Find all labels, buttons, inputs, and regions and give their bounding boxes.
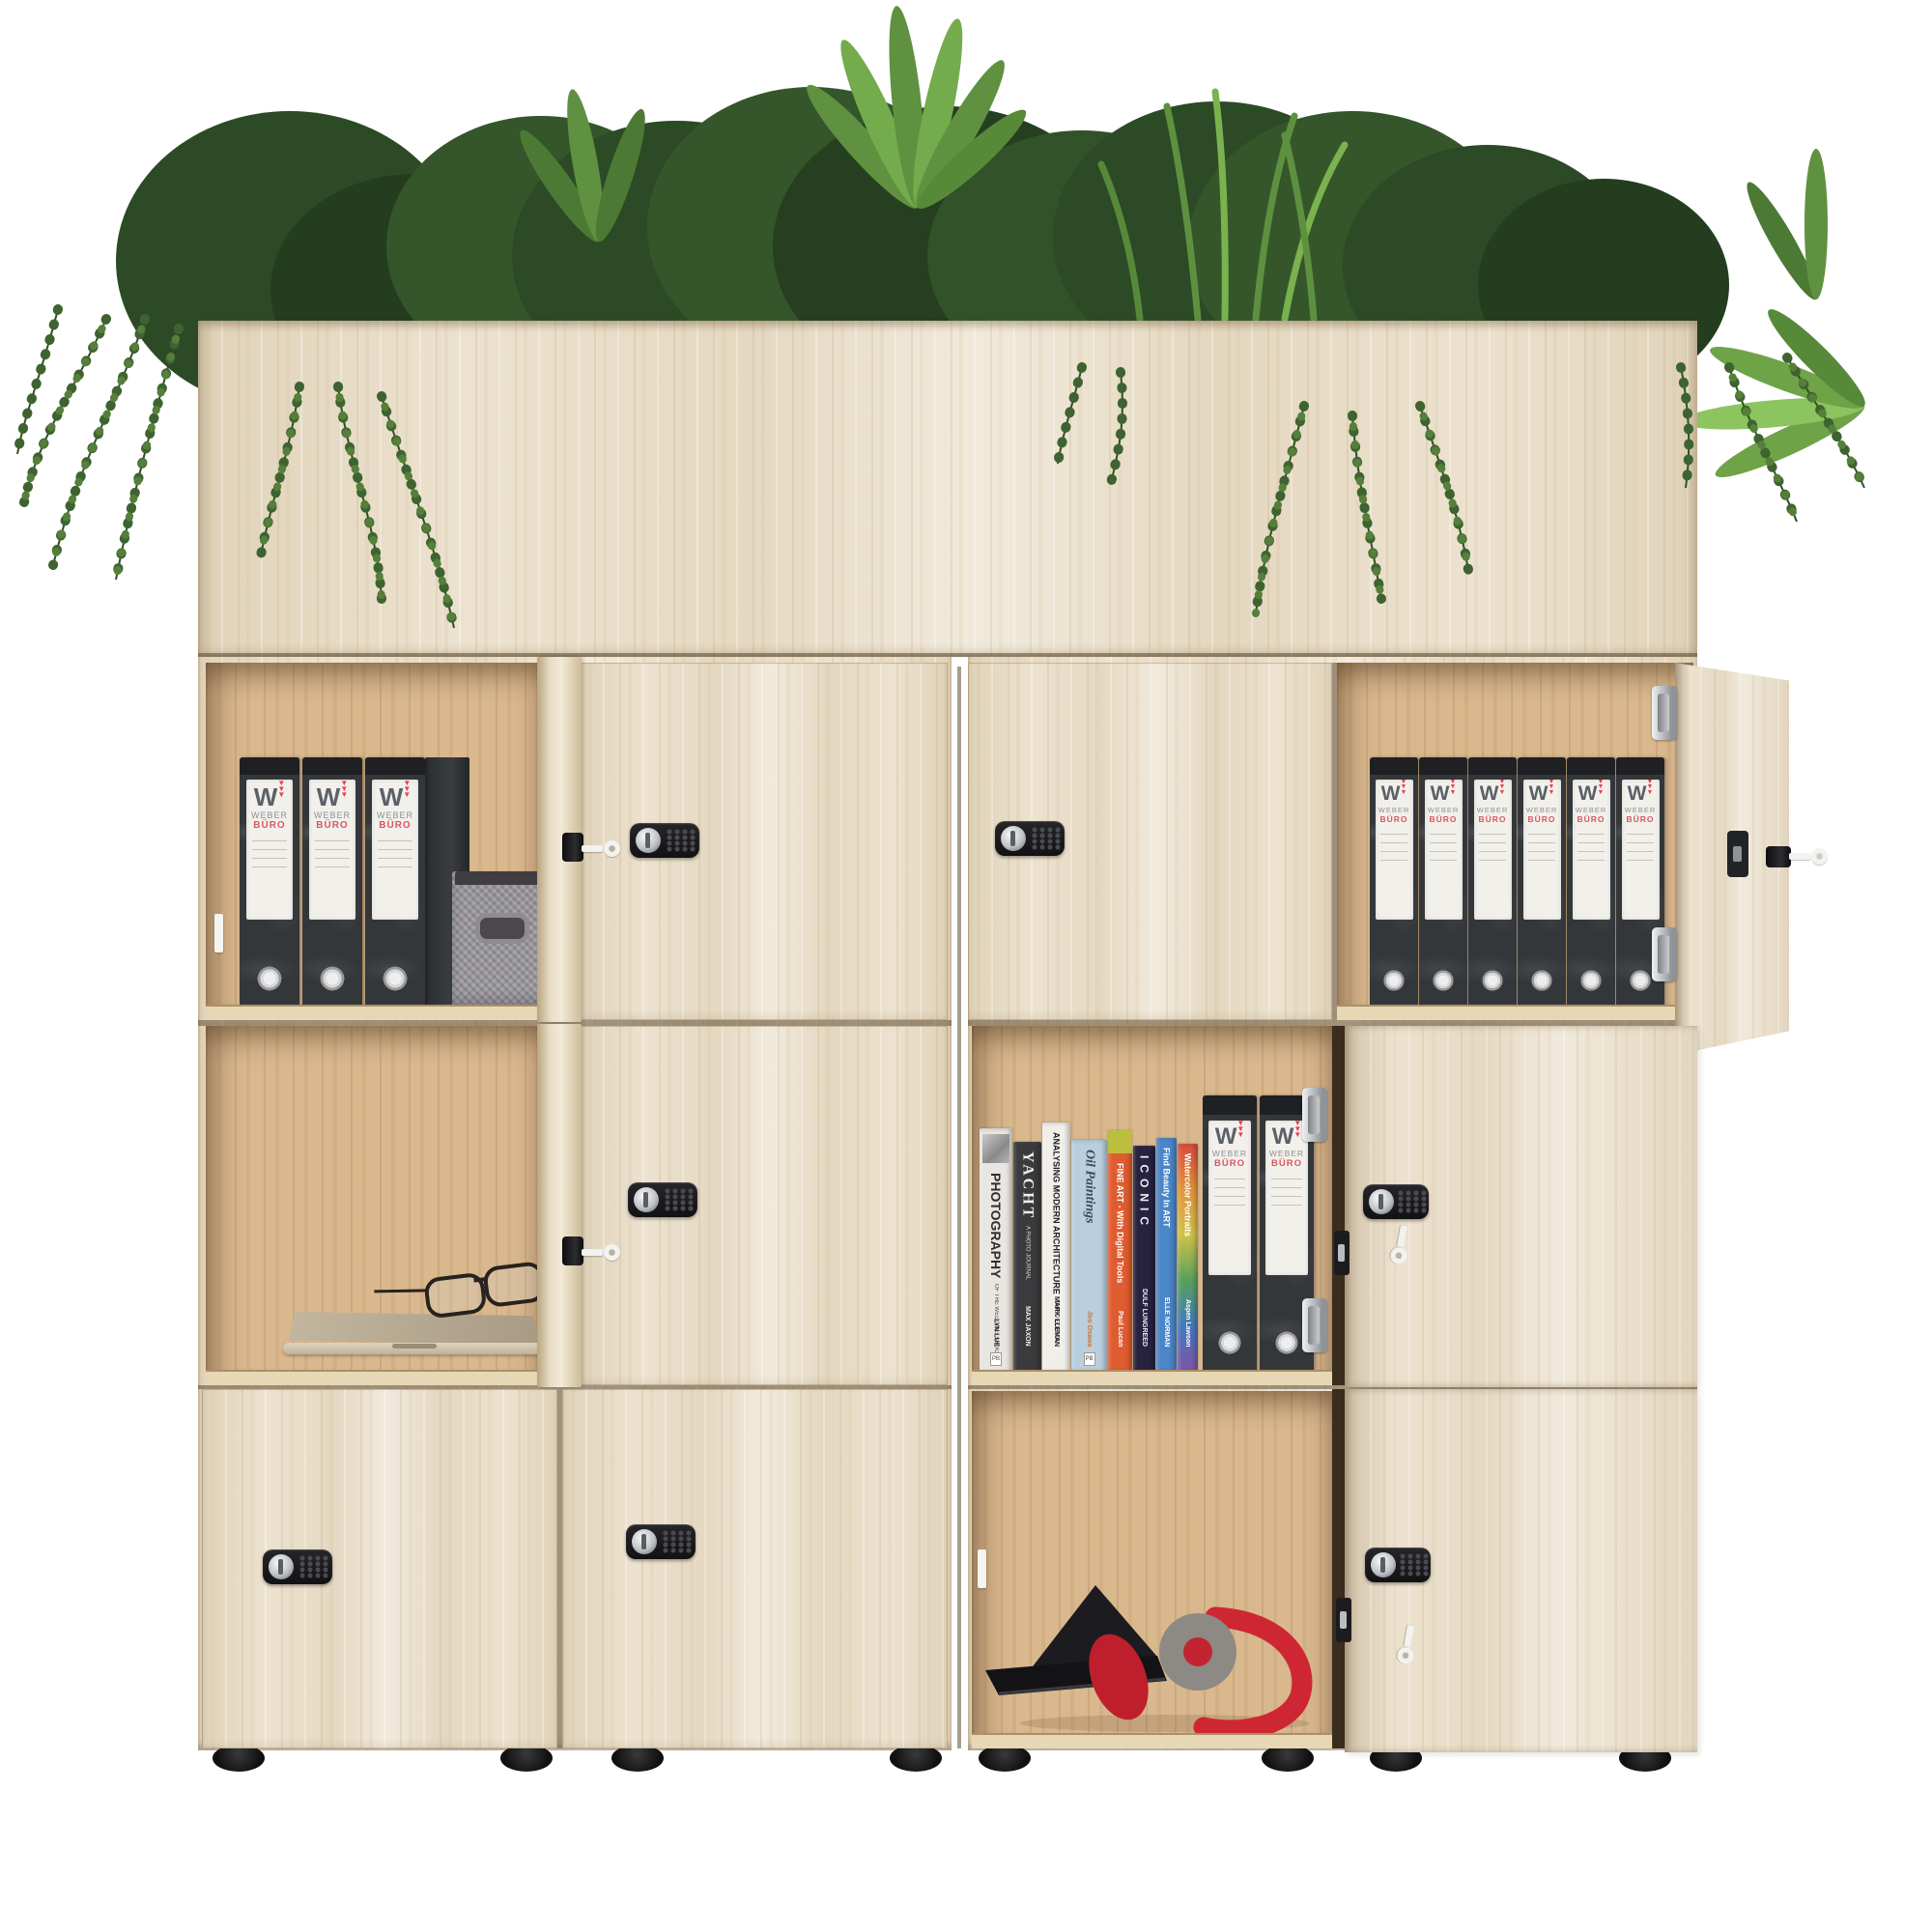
book-spine: PHOTOGRAPHYOF THE WEDDING SHOOTLYN LUEPB <box>980 1128 1012 1372</box>
binder-logo-triangles: ▼▼▼ <box>403 781 411 799</box>
planter-box <box>198 321 1697 657</box>
binder-label: W▼▼▼WEBERBÜRO <box>372 780 418 919</box>
tablet-and-headphones <box>972 1571 1332 1748</box>
binder: W▼▼▼WEBERBÜRO <box>302 757 362 1007</box>
binder-logo-letter: W <box>1578 785 1598 804</box>
binder-logo: W▼▼▼ <box>1272 1126 1302 1148</box>
binder-label: W▼▼▼WEBERBÜRO <box>1622 780 1660 919</box>
book-spine: FINE ART - With Digital ToolsPaul Lucan <box>1108 1130 1132 1372</box>
binder-logo: W▼▼▼ <box>1529 785 1555 804</box>
compartment-open-top-left: W▼▼▼WEBERBÜROW▼▼▼WEBERBÜROW▼▼▼WEBERBÜRO <box>206 663 541 1020</box>
shelf-edge <box>1337 1005 1693 1020</box>
door-seam <box>557 1389 562 1748</box>
white-key <box>582 1244 620 1261</box>
binder-logo-triangles: ▼▼▼ <box>1646 780 1653 795</box>
book-title: ICONIC <box>1138 1155 1151 1231</box>
book-title: Oil Paintings <box>1082 1150 1097 1224</box>
gray-fabric-storage-cube <box>452 871 541 1007</box>
binder-logo-triangles: ▼▼▼ <box>1548 780 1554 795</box>
binder-logo-triangles: ▼▼▼ <box>1293 1121 1301 1139</box>
book-author: MARK LLEMAN <box>1053 1296 1060 1347</box>
cabinet-foot <box>213 1745 265 1772</box>
binder-logo-letter: W <box>1215 1126 1237 1148</box>
binder-brand-bottom: BÜRO <box>253 820 285 831</box>
book-author: LYN LUE <box>993 1319 1000 1347</box>
binder-brand-top: WEBER <box>377 810 413 820</box>
binder-logo: W▼▼▼ <box>1628 785 1654 804</box>
door-seam <box>1332 663 1337 1020</box>
binder-brand-bottom: BÜRO <box>379 820 411 831</box>
binder-logo: W▼▼▼ <box>1431 785 1457 804</box>
combination-lock-door-back <box>1363 1184 1429 1219</box>
book-title: YACHT <box>1019 1151 1037 1220</box>
glasses-arm <box>374 1289 428 1293</box>
binder-logo-triangles: ▼▼▼ <box>277 781 285 799</box>
cabinet-foot <box>1262 1745 1314 1772</box>
binder-label: W▼▼▼WEBERBÜRO <box>1425 780 1463 919</box>
lock-key-dial <box>636 828 661 853</box>
binder-label: W▼▼▼WEBERBÜRO <box>1573 780 1610 919</box>
binder-brand-bottom: BÜRO <box>316 820 348 831</box>
door-strike-plate <box>1336 1598 1351 1642</box>
binder-label-lines <box>378 840 412 873</box>
binder-logo-letter: W <box>1529 785 1548 804</box>
glasses-bridge <box>473 1277 488 1289</box>
key-blade <box>582 845 603 852</box>
binder-logo-letter: W <box>254 786 278 809</box>
binder: W▼▼▼WEBERBÜRO <box>1468 757 1517 1007</box>
binder-group-top-right: W▼▼▼WEBERBÜROW▼▼▼WEBERBÜROW▼▼▼WEBERBÜROW… <box>1370 757 1664 1007</box>
book-title: Find Beauty In ART <box>1162 1148 1172 1228</box>
binder-brand-top: WEBER <box>1428 806 1460 814</box>
binder-brand-top: WEBER <box>314 810 351 820</box>
binder-brand-bottom: BÜRO <box>1478 814 1506 824</box>
laptop-lid <box>288 1312 541 1345</box>
book-author: MAX JAXON <box>1024 1306 1031 1347</box>
door-strike-plate <box>1334 1231 1350 1275</box>
binder-brand-top: WEBER <box>1269 1149 1304 1158</box>
book-title: PHOTOGRAPHY <box>988 1173 1004 1278</box>
combination-lock <box>263 1549 332 1584</box>
book-title: ANALYSING MODERN ARCHITECTURE <box>1052 1132 1062 1294</box>
lock-key-dial <box>1371 1552 1396 1577</box>
binder-brand-bottom: BÜRO <box>1577 814 1605 824</box>
lock-key-dial <box>1001 826 1026 851</box>
binder-ring-hole <box>1579 969 1603 992</box>
binder-brand-bottom: BÜRO <box>1626 814 1654 824</box>
lock-digit-wheels <box>1400 1553 1429 1577</box>
binder-brand-bottom: BÜRO <box>1379 814 1407 824</box>
book-top-band <box>1108 1130 1132 1153</box>
binder-label: W▼▼▼WEBERBÜRO <box>1208 1121 1251 1275</box>
book-spine: Watercolor PortraitsAspen Lawson <box>1178 1144 1198 1372</box>
binder-logo-letter: W <box>1272 1126 1294 1148</box>
book-row: PHOTOGRAPHYOF THE WEDDING SHOOTLYN LUEPB… <box>980 1122 1198 1372</box>
key-blade <box>582 1249 603 1256</box>
lock-key-dial <box>634 1187 659 1212</box>
binder-label-lines <box>1627 834 1655 863</box>
cabinet-foot <box>890 1745 942 1772</box>
binder-ring-hole <box>1382 969 1406 992</box>
combination-lock <box>630 823 699 858</box>
lock-key-dial <box>632 1529 657 1554</box>
key-blade <box>1404 1625 1414 1647</box>
binder-logo: W▼▼▼ <box>317 786 348 809</box>
binder-ring-hole <box>382 965 409 992</box>
binder-label-lines <box>1430 834 1458 863</box>
key-bow <box>1389 1246 1408 1265</box>
binder: W▼▼▼WEBERBÜRO <box>1567 757 1615 1007</box>
binder-label-lines <box>1528 834 1556 863</box>
binder-brand-top: WEBER <box>1576 806 1607 814</box>
binder-brand-top: WEBER <box>1625 806 1657 814</box>
white-key <box>1789 848 1828 865</box>
door-back-latch <box>1727 831 1748 877</box>
binder-logo: W▼▼▼ <box>1578 785 1605 804</box>
binder-logo-letter: W <box>380 786 404 809</box>
book-spine: ICONICDULF LUNGREED <box>1133 1146 1155 1372</box>
cabinet-foot <box>979 1745 1031 1772</box>
planter-locker-seam <box>198 653 1697 657</box>
book-author: Aspen Lawson <box>1184 1299 1191 1347</box>
combination-lock <box>626 1524 696 1559</box>
door-catch-plate <box>978 1549 986 1588</box>
lock-key-dial <box>269 1554 294 1579</box>
storage-cube-handle-hole <box>475 913 529 944</box>
door-catch-plate <box>214 914 223 952</box>
laptop-base <box>283 1343 541 1354</box>
binder-label: W▼▼▼WEBERBÜRO <box>1376 780 1413 919</box>
book-subtitle: A PHOTO JOURNAL <box>1025 1226 1031 1280</box>
storage-cube-opening <box>455 871 541 885</box>
locker-door-open-middle-left <box>537 1024 582 1387</box>
binder-label: W▼▼▼WEBERBÜRO <box>1523 780 1561 919</box>
binder-logo-letter: W <box>1628 785 1647 804</box>
binder-label-lines <box>1577 834 1605 863</box>
compartment-open-top-right: W▼▼▼WEBERBÜROW▼▼▼WEBERBÜROW▼▼▼WEBERBÜROW… <box>1337 663 1693 1020</box>
book-photo-thumbnail <box>982 1134 1009 1163</box>
door-hinge <box>1302 1298 1327 1352</box>
lock-digit-wheels <box>1398 1190 1427 1213</box>
shelf-edge <box>206 1370 541 1385</box>
binder-brand-bottom: BÜRO <box>1214 1158 1245 1169</box>
binder-label: W▼▼▼WEBERBÜRO <box>309 780 355 919</box>
binder-brand-top: WEBER <box>1526 806 1558 814</box>
book-author: Jiro Osawa <box>1086 1311 1093 1347</box>
combination-lock-door-back <box>1365 1548 1431 1582</box>
key-bow <box>1811 848 1828 865</box>
binder-logo-letter: W <box>317 786 341 809</box>
compartment-open-middle-right: PHOTOGRAPHYOF THE WEDDING SHOOTLYN LUEPB… <box>972 1026 1332 1385</box>
book-spine: Find Beauty In ARTELLE NORMAN <box>1156 1138 1177 1372</box>
binder-logo-triangles: ▼▼▼ <box>1400 780 1406 795</box>
combination-lock <box>995 821 1065 856</box>
publisher-logo: PB <box>1084 1352 1095 1366</box>
lock-digit-wheels <box>665 1188 694 1211</box>
binder-group-top-left: W▼▼▼WEBERBÜROW▼▼▼WEBERBÜROW▼▼▼WEBERBÜRO <box>240 757 425 1007</box>
binder-label: W▼▼▼WEBERBÜRO <box>1265 1121 1308 1275</box>
binder-brand-bottom: BÜRO <box>1271 1158 1302 1169</box>
module-gap-seam <box>957 667 961 1748</box>
binder-brand-top: WEBER <box>1477 806 1509 814</box>
binder-label-lines <box>1479 834 1507 863</box>
book-title: FINE ART - With Digital Tools <box>1116 1163 1125 1283</box>
lock-key-dial <box>1369 1189 1394 1214</box>
binder-label-lines <box>252 840 287 873</box>
binder-logo: W▼▼▼ <box>1480 785 1506 804</box>
fern-fronds-right-upper <box>1739 149 1828 305</box>
binder-logo-letter: W <box>1431 785 1450 804</box>
shelf-edge <box>972 1733 1332 1748</box>
binder-logo: W▼▼▼ <box>380 786 411 809</box>
binder-label-lines <box>1380 834 1408 863</box>
compartment-open-bottom-right <box>972 1391 1332 1748</box>
book-spine: YACHTA PHOTO JOURNALMAX JAXON <box>1013 1142 1041 1372</box>
book-author: DULF LUNGREED <box>1141 1289 1148 1347</box>
lock-digit-wheels <box>299 1555 328 1578</box>
binder-label-lines <box>1214 1179 1245 1213</box>
cabinet-foot <box>500 1745 553 1772</box>
binder-ring-hole <box>319 965 346 992</box>
door-hinge <box>1652 927 1677 981</box>
lock-digit-wheels <box>1032 827 1061 850</box>
locker-door-closed-row3-col1 <box>202 1389 557 1748</box>
book-spine: Oil PaintingsJiro OsawaPB <box>1071 1140 1107 1372</box>
combination-lock <box>628 1182 697 1217</box>
binder-group-middle-right: W▼▼▼WEBERBÜROW▼▼▼WEBERBÜRO <box>1203 1095 1314 1372</box>
publisher-logo: PB <box>990 1352 1002 1366</box>
white-key <box>582 840 620 857</box>
binder-ring-hole <box>1217 1330 1242 1355</box>
binder-logo-triangles: ▼▼▼ <box>1498 780 1505 795</box>
binder-logo-triangles: ▼▼▼ <box>1449 780 1456 795</box>
binder: W▼▼▼WEBERBÜRO <box>1419 757 1467 1007</box>
binder-ring-hole <box>1629 969 1652 992</box>
binder-logo: W▼▼▼ <box>1381 785 1407 804</box>
door-hinge <box>1302 1088 1327 1142</box>
shelf-edge <box>206 1005 541 1020</box>
binder-label-lines <box>315 840 350 873</box>
book-title: Watercolor Portraits <box>1183 1153 1193 1236</box>
key-bow <box>1396 1646 1415 1665</box>
binder-brand-top: WEBER <box>251 810 288 820</box>
key-cylinder <box>1766 846 1791 867</box>
binder-brand-top: WEBER <box>1212 1149 1247 1158</box>
book-spine: ANALYSING MODERN ARCHITECTURETHIRD EDITI… <box>1042 1122 1070 1372</box>
binder-ring-hole <box>1274 1330 1299 1355</box>
binder-label: W▼▼▼WEBERBÜRO <box>246 780 293 919</box>
binder-logo-triangles: ▼▼▼ <box>340 781 348 799</box>
key-cylinder <box>562 1236 583 1265</box>
product-render-canvas: W▼▼▼WEBERBÜROW▼▼▼WEBERBÜROW▼▼▼WEBERBÜRO <box>0 0 1932 1932</box>
door-hinge <box>1652 686 1677 740</box>
key-bow <box>604 1244 620 1261</box>
key-cylinder <box>562 833 583 862</box>
binder-label: W▼▼▼WEBERBÜRO <box>1474 780 1512 919</box>
key-blade <box>1789 853 1810 860</box>
binder: W▼▼▼WEBERBÜRO <box>1518 757 1566 1007</box>
binder: W▼▼▼WEBERBÜRO <box>1203 1095 1257 1372</box>
compartment-open-middle-left <box>206 1026 541 1385</box>
book-author: Paul Lucan <box>1117 1311 1123 1347</box>
binder-brand-top: WEBER <box>1378 806 1410 814</box>
binder: W▼▼▼WEBERBÜRO <box>1370 757 1418 1007</box>
headphone-earcup-center <box>1183 1637 1212 1666</box>
binder-brand-bottom: BÜRO <box>1527 814 1555 824</box>
lock-digit-wheels <box>667 829 696 852</box>
locker-door-closed-row3-col2 <box>562 1389 948 1748</box>
lock-digit-wheels <box>663 1530 692 1553</box>
binder-ring-hole <box>1530 969 1553 992</box>
binder: W▼▼▼WEBERBÜRO <box>365 757 425 1007</box>
binder-logo: W▼▼▼ <box>1215 1126 1245 1148</box>
key-blade <box>1397 1225 1407 1247</box>
binder: W▼▼▼WEBERBÜRO <box>240 757 299 1007</box>
cabinet-foot <box>611 1745 664 1772</box>
binder-brand-bottom: BÜRO <box>1429 814 1457 824</box>
binder-logo-triangles: ▼▼▼ <box>1236 1121 1244 1139</box>
binder-logo-letter: W <box>1480 785 1499 804</box>
binder-logo-triangles: ▼▼▼ <box>1597 780 1604 795</box>
binder-label-lines <box>1271 1179 1302 1213</box>
shelf-edge <box>972 1370 1332 1385</box>
book-author: ELLE NORMAN <box>1163 1297 1170 1347</box>
binder-ring-hole <box>256 965 283 992</box>
key-bow <box>604 840 620 857</box>
binder-logo-letter: W <box>1381 785 1401 804</box>
binder-ring-hole <box>1481 969 1504 992</box>
binder-ring-hole <box>1432 969 1455 992</box>
binder-logo: W▼▼▼ <box>254 786 285 809</box>
glasses-lens-right <box>482 1261 541 1308</box>
